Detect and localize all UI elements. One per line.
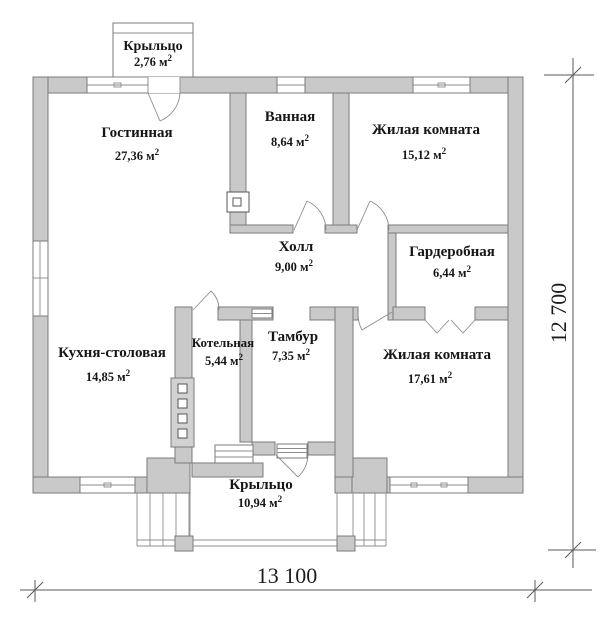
kitchen-flue (171, 378, 194, 447)
porch-column-right (337, 536, 355, 551)
window-kitchen-bottom (80, 477, 135, 493)
room-area-bath: 8,64 м2 (271, 133, 310, 149)
room-label-porch-bottom: Крыльцо (229, 477, 292, 493)
window-bedroom1-top (413, 77, 470, 93)
room-area-vestibule: 7,35 м2 (272, 347, 311, 363)
door-wardrobe-double (425, 320, 475, 333)
dimension-bottom: 13 100 (20, 563, 592, 602)
dim-width-label: 13 100 (257, 563, 318, 588)
window-bath-top (277, 77, 305, 93)
wall-vestibule-south-a (252, 442, 275, 455)
room-label-living: Гостинная (101, 125, 172, 141)
kitchen-flue-duct-4 (178, 429, 187, 438)
porch-column-left (175, 536, 193, 551)
porch-right-wing (352, 458, 387, 493)
wall-right (508, 77, 523, 493)
window-bedroom2-bottom (390, 477, 468, 493)
room-area-boiler: 5,44 м2 (205, 352, 244, 368)
wall-bath-bedroom1 (333, 93, 349, 233)
window-vestibule-slot (252, 309, 272, 318)
dimension-right: 12 700 (544, 58, 596, 568)
room-area-wardrobe: 6,44 м2 (433, 264, 472, 280)
door-boiler (193, 291, 219, 310)
room-area-porch-top: 2,76 м2 (134, 53, 173, 69)
wall-hall-north-b (325, 225, 357, 233)
door-bedroom2 (358, 312, 392, 330)
kitchen-flue-duct-3 (178, 414, 187, 423)
wall-hall-north-c (388, 225, 508, 233)
wall-hall-north-a (230, 225, 293, 233)
room-area-bedroom2: 17,61 м2 (408, 370, 453, 386)
window-boiler-south (215, 445, 253, 463)
wall-south-band-e (475, 307, 508, 320)
room-area-kitchen: 14,85 м2 (86, 368, 131, 384)
room-label-vestibule: Тамбур (268, 329, 318, 345)
room-label-wardrobe: Гардеробная (409, 244, 495, 260)
room-label-bath: Ванная (265, 109, 315, 125)
room-label-porch-top: Крыльцо (123, 39, 182, 54)
door-bedroom1 (357, 201, 389, 230)
interior-walls (175, 93, 508, 477)
wall-boiler-south (192, 463, 263, 477)
kitchen-flue-duct-2 (178, 399, 187, 408)
room-label-bedroom1: Жилая комната (372, 122, 480, 138)
bath-flue (227, 192, 249, 212)
door-bath (294, 201, 326, 230)
room-label-bedroom2: Жилая комната (383, 347, 491, 363)
wall-vestibule-south-b (308, 442, 335, 455)
room-area-hall: 9,00 м2 (275, 258, 314, 274)
room-area-living: 27,36 м2 (115, 147, 160, 163)
floor-plan-drawing: Крыльцо 2,76 м2 Гостинная 27,36 м2 Ванна… (0, 0, 600, 620)
room-label-boiler: Котельная (192, 335, 254, 350)
bath-flue-duct (233, 198, 241, 206)
floor-plan: Крыльцо 2,76 м2 Гостинная 27,36 м2 Ванна… (0, 0, 600, 620)
wall-south-band-d (393, 307, 425, 320)
room-label-hall: Холл (279, 239, 314, 255)
door-living-entry (148, 77, 180, 121)
window-left-wall (33, 241, 48, 316)
kitchen-flue-duct-1 (178, 384, 187, 393)
room-area-bedroom1: 15,12 м2 (402, 146, 447, 162)
wall-vestibule-east (335, 307, 353, 477)
window-living-top (87, 77, 148, 93)
room-label-kitchen: Кухня-столовая (58, 345, 166, 361)
room-labels: Крыльцо 2,76 м2 Гостинная 27,36 м2 Ванна… (58, 39, 495, 510)
porch-steps-right (353, 493, 386, 546)
door-vestibule-porch (276, 444, 308, 477)
room-area-porch-bottom: 10,94 м2 (238, 494, 283, 510)
dim-height-label: 12 700 (546, 283, 571, 344)
